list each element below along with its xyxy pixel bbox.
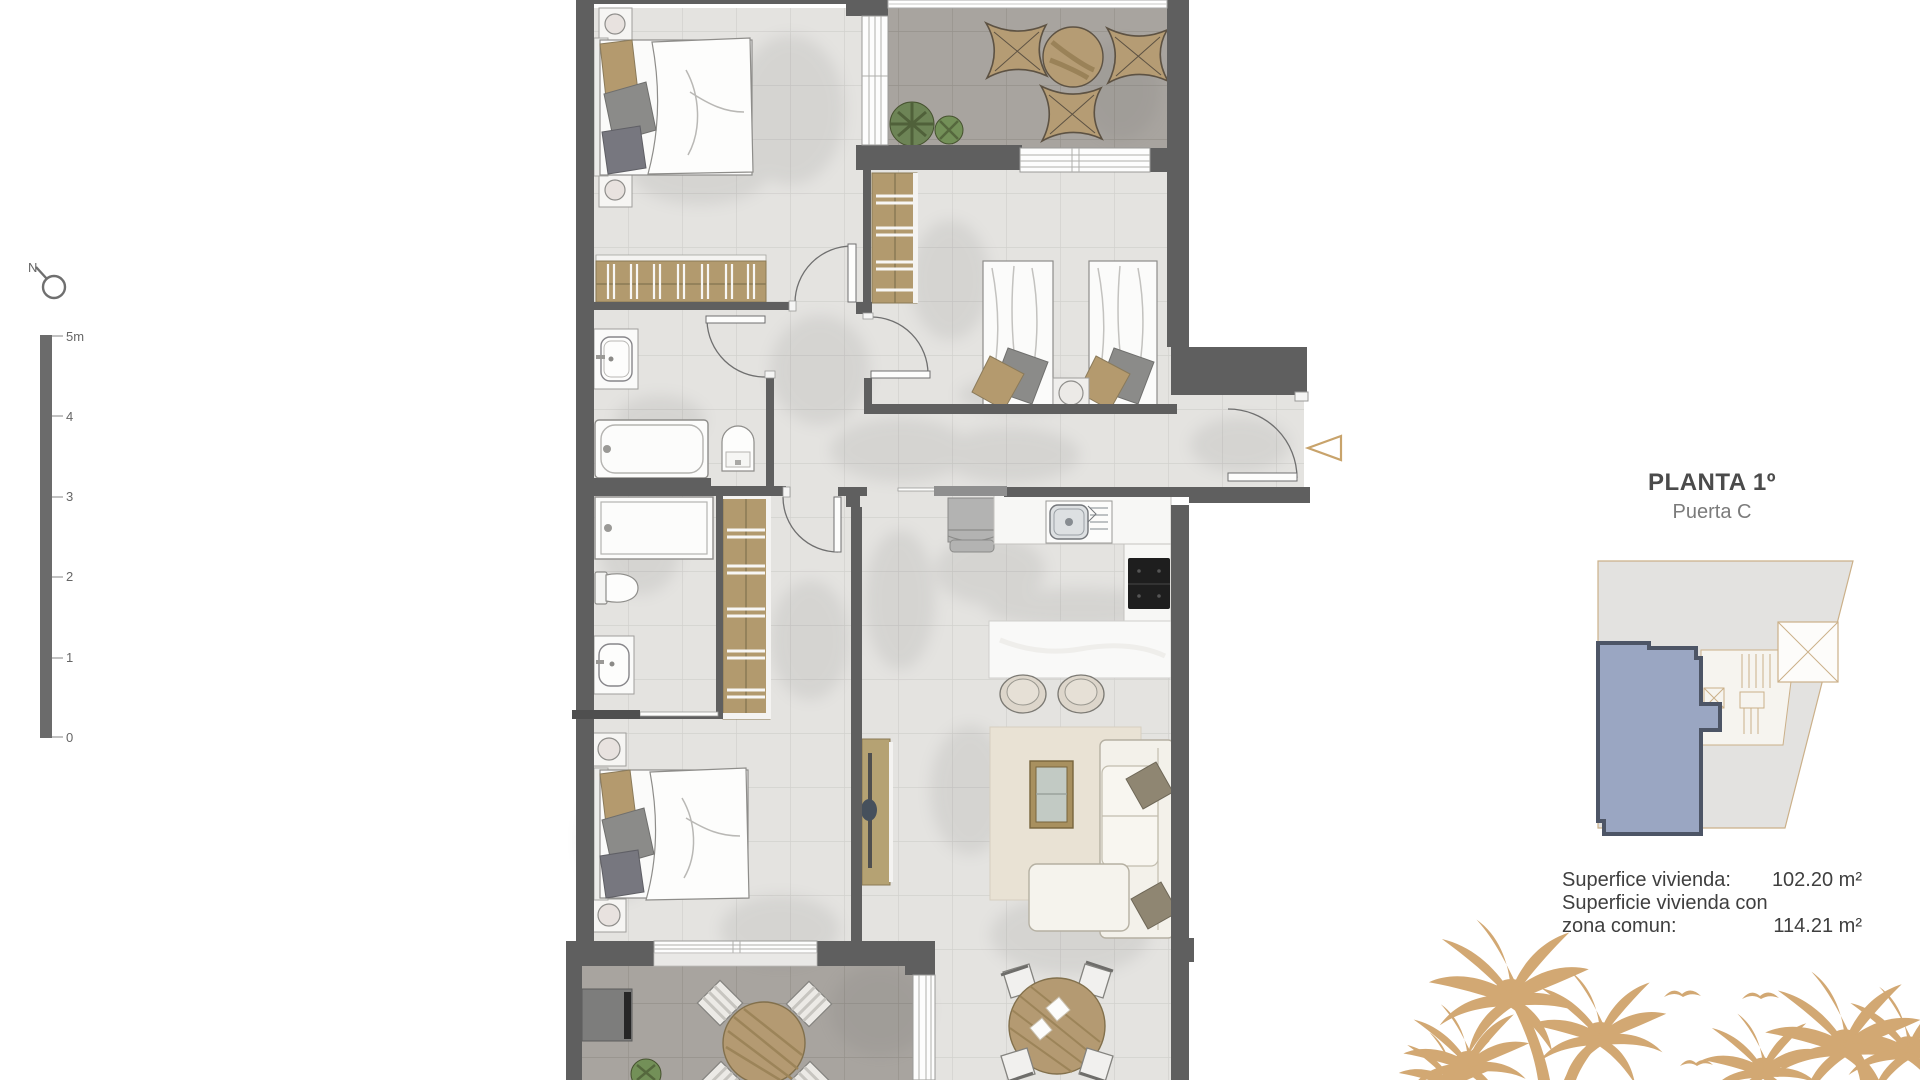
svg-text:5m: 5m [66,329,84,344]
svg-text:zona comun:: zona comun: [1562,915,1677,937]
svg-text:1: 1 [66,650,73,665]
svg-text:Puerta C: Puerta C [1673,501,1752,523]
svg-text:3: 3 [66,489,73,504]
svg-text:N: N [28,260,37,275]
svg-text:4: 4 [66,409,73,424]
svg-text:Superficie vivienda con: Superficie vivienda con [1562,892,1768,914]
svg-text:102.20 m²: 102.20 m² [1772,869,1862,891]
svg-text:PLANTA 1º: PLANTA 1º [1648,469,1776,496]
svg-text:114.21 m²: 114.21 m² [1773,915,1862,937]
svg-text:0: 0 [66,730,73,745]
svg-text:Superfice vivienda:: Superfice vivienda: [1562,869,1731,891]
svg-text:2: 2 [66,569,73,584]
